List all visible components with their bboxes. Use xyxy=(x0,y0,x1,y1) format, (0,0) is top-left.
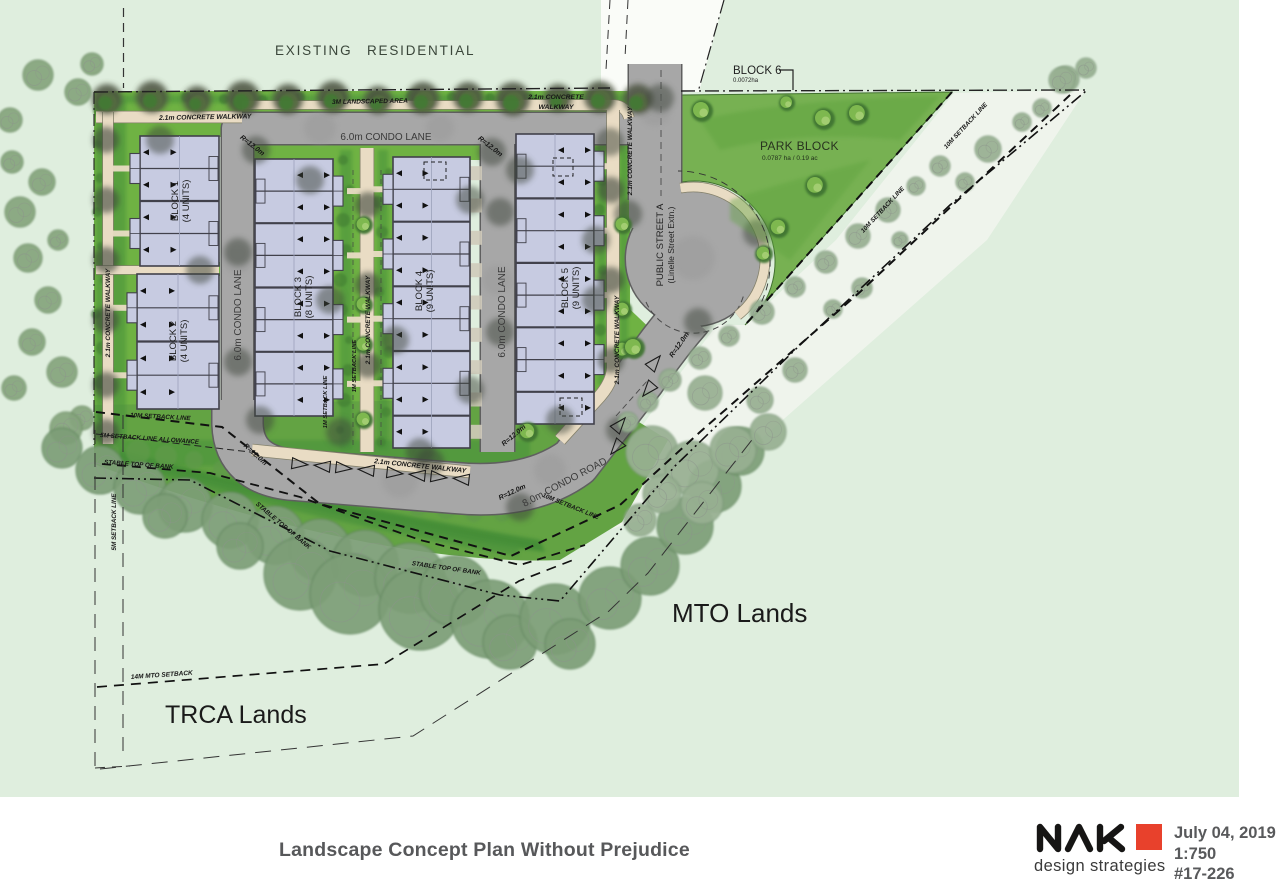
svg-text:RESIDENTIAL: RESIDENTIAL xyxy=(367,43,475,58)
svg-text:(Linelle Street Extn.): (Linelle Street Extn.) xyxy=(666,206,676,283)
svg-text:BLOCK 2: BLOCK 2 xyxy=(168,321,179,361)
svg-text:2.1m CONCRETE: 2.1m CONCRETE xyxy=(527,94,584,101)
svg-text:3M LANDSCAPED AREA: 3M LANDSCAPED AREA xyxy=(332,98,408,106)
svg-text:1M SETBACK LINE: 1M SETBACK LINE xyxy=(352,339,358,393)
svg-text:design strategies: design strategies xyxy=(1034,857,1166,875)
svg-text:MTO Lands: MTO Lands xyxy=(672,598,807,628)
svg-text:1M SETBACK LINE: 1M SETBACK LINE xyxy=(323,375,329,429)
svg-text:BLOCK 1: BLOCK 1 xyxy=(170,181,181,221)
svg-text:BLOCK 6: BLOCK 6 xyxy=(733,65,782,77)
svg-text:5M SETBACK LINE: 5M SETBACK LINE xyxy=(111,493,118,551)
svg-text:6.0m CONDO LANE: 6.0m CONDO LANE xyxy=(233,269,244,360)
svg-text:#17-226: #17-226 xyxy=(1174,865,1235,883)
svg-text:(8 UNITS): (8 UNITS) xyxy=(304,276,315,319)
svg-text:6.0m CONDO LANE: 6.0m CONDO LANE xyxy=(340,132,431,143)
svg-text:6.0m CONDO LANE: 6.0m CONDO LANE xyxy=(497,266,508,357)
svg-text:(4 UNITS): (4 UNITS) xyxy=(181,180,192,223)
svg-text:0.0072ha: 0.0072ha xyxy=(733,78,759,84)
svg-text:2.1m CONCRETE WALKWAY: 2.1m CONCRETE WALKWAY xyxy=(105,268,112,358)
svg-text:0.0787 ha / 0.19 ac: 0.0787 ha / 0.19 ac xyxy=(762,155,818,162)
svg-text:TRCA Lands: TRCA Lands xyxy=(165,701,307,729)
svg-text:(4 UNITS): (4 UNITS) xyxy=(179,320,190,363)
svg-text:BLOCK 3: BLOCK 3 xyxy=(293,277,304,317)
svg-text:WALKWAY: WALKWAY xyxy=(539,104,575,111)
svg-text:(9 UNITS): (9 UNITS) xyxy=(571,267,582,310)
svg-text:Landscape Concept Plan Without: Landscape Concept Plan Without Prejudice xyxy=(279,839,690,861)
svg-text:2.1m CONCRETE WALKWAY: 2.1m CONCRETE WALKWAY xyxy=(614,295,621,385)
svg-text:(9 UNITS): (9 UNITS) xyxy=(425,270,436,313)
svg-text:PUBLIC STREET A: PUBLIC STREET A xyxy=(655,203,666,286)
svg-text:July 04, 2019: July 04, 2019 xyxy=(1174,824,1276,842)
svg-text:BLOCK 5: BLOCK 5 xyxy=(560,268,571,308)
svg-text:PARK BLOCK: PARK BLOCK xyxy=(760,139,839,153)
svg-text:BLOCK 4: BLOCK 4 xyxy=(414,271,425,311)
svg-text:1:750: 1:750 xyxy=(1174,845,1216,863)
svg-text:2.1m CONCRETE WALKWAY: 2.1m CONCRETE WALKWAY xyxy=(365,275,372,365)
svg-text:2.1m CONCRETE WALKWAY: 2.1m CONCRETE WALKWAY xyxy=(627,106,634,196)
svg-text:EXISTING: EXISTING xyxy=(275,43,352,58)
